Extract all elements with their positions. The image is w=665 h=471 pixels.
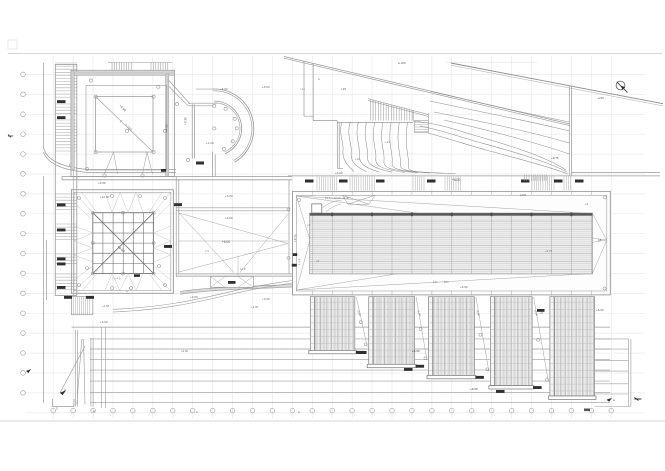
svg-text:a 100: a 100	[398, 61, 406, 65]
svg-text:+6.00: +6.00	[470, 387, 478, 391]
svg-text:+6.00: +6.00	[262, 85, 270, 89]
svg-text:141: 141	[433, 280, 438, 284]
svg-text:+12.00: +12.00	[100, 195, 110, 199]
svg-text:12.5 x 30.00: 12.5 x 30.00	[325, 196, 341, 200]
svg-text:+13: +13	[385, 140, 390, 144]
svg-text:+4.50: +4.50	[102, 304, 110, 308]
svg-text:+6.00: +6.00	[342, 196, 350, 200]
svg-text:+5: +5	[307, 223, 311, 227]
svg-text:7.5: 7.5	[205, 249, 209, 253]
svg-text:12.5: 12.5	[240, 267, 246, 271]
svg-text:+6.00: +6.00	[220, 87, 228, 91]
svg-text:+12: +12	[355, 157, 360, 161]
svg-text:+9.75: +9.75	[293, 234, 297, 242]
svg-text:+6.00: +6.00	[222, 240, 230, 244]
svg-text:+3.30: +3.30	[183, 117, 188, 125]
svg-text:+6.00: +6.00	[225, 216, 233, 220]
svg-text:+15: +15	[341, 87, 346, 91]
svg-text:+6.00: +6.00	[335, 171, 343, 175]
svg-text:18: 18	[598, 238, 602, 242]
svg-text:+6.00: +6.00	[596, 308, 604, 312]
svg-text:+3.00: +3.00	[190, 295, 198, 299]
svg-text:+9: +9	[585, 202, 589, 206]
svg-text:+9.75: +9.75	[545, 249, 553, 253]
svg-text:+3.00: +3.00	[262, 297, 270, 301]
svg-text:+6.00: +6.00	[100, 320, 108, 324]
svg-text:+6.00: +6.00	[452, 178, 460, 182]
svg-text:a 50: a 50	[598, 96, 604, 100]
svg-text:+3.00: +3.00	[251, 305, 259, 309]
svg-text:+9: +9	[316, 259, 320, 263]
svg-text:+6.00: +6.00	[225, 194, 233, 198]
svg-text:+1.20: +1.20	[206, 141, 214, 145]
svg-text:+6.00: +6.00	[98, 181, 106, 185]
svg-text:+6.00: +6.00	[412, 349, 420, 353]
svg-text:1 x 4: 1 x 4	[297, 258, 301, 265]
svg-text:+4.50: +4.50	[165, 124, 169, 132]
svg-text:7 x 4.5: 7 x 4.5	[112, 277, 121, 281]
svg-text:+6.00: +6.00	[460, 285, 468, 289]
svg-text:1250: 1250	[520, 193, 527, 197]
svg-text:161: 161	[444, 280, 449, 284]
svg-text:+14: +14	[300, 87, 305, 91]
svg-text:+9.75: +9.75	[551, 156, 559, 160]
svg-text:+6.00: +6.00	[181, 349, 189, 353]
